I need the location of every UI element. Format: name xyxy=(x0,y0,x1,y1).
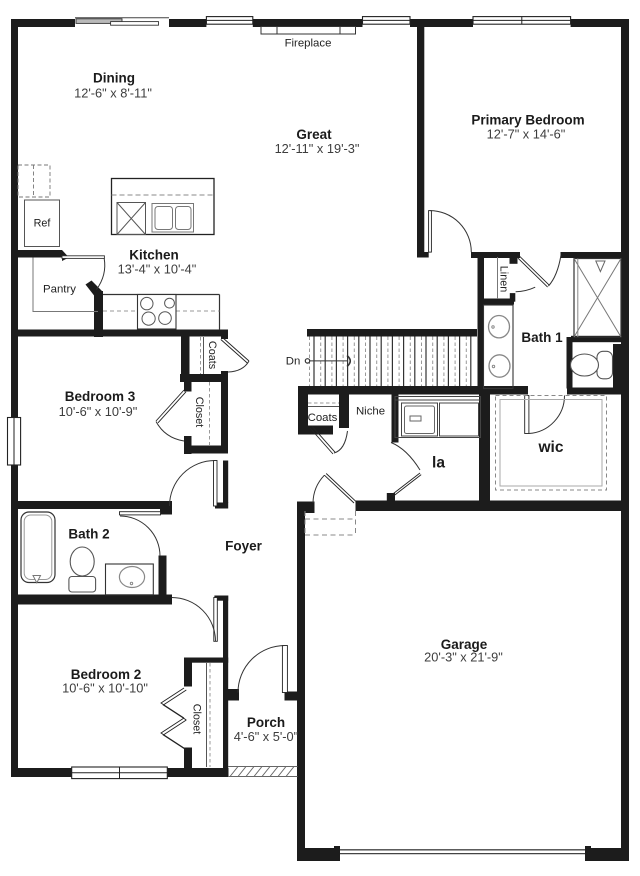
svg-text:Pantry: Pantry xyxy=(43,284,76,296)
svg-text:Dn: Dn xyxy=(286,356,301,368)
svg-text:Ref: Ref xyxy=(34,218,52,230)
svg-text:Dining: Dining xyxy=(93,71,135,86)
svg-text:12'-7" x 14'-6": 12'-7" x 14'-6" xyxy=(487,127,566,142)
svg-text:Coats: Coats xyxy=(308,412,338,424)
svg-text:Niche: Niche xyxy=(356,406,385,418)
svg-text:Coats: Coats xyxy=(206,341,218,370)
svg-text:Fireplace: Fireplace xyxy=(285,38,332,50)
svg-text:Great: Great xyxy=(296,127,332,142)
svg-text:Linen: Linen xyxy=(498,266,510,292)
svg-text:Bath 1: Bath 1 xyxy=(521,330,563,345)
svg-text:Primary Bedroom: Primary Bedroom xyxy=(471,113,584,128)
svg-text:12'-6" x 8'-11": 12'-6" x 8'-11" xyxy=(74,86,152,101)
svg-text:4'-6" x 5'-0": 4'-6" x 5'-0" xyxy=(234,729,298,744)
svg-text:la: la xyxy=(432,455,445,472)
svg-text:Porch: Porch xyxy=(247,715,285,730)
svg-text:Bedroom 3: Bedroom 3 xyxy=(65,389,136,404)
svg-text:Bath 2: Bath 2 xyxy=(68,527,109,542)
svg-text:Foyer: Foyer xyxy=(225,539,263,554)
svg-text:Closet: Closet xyxy=(191,704,203,735)
svg-text:Kitchen: Kitchen xyxy=(129,248,179,263)
svg-text:12'-11" x 19'-3": 12'-11" x 19'-3" xyxy=(275,141,360,156)
svg-text:Closet: Closet xyxy=(193,397,205,428)
svg-text:20'-3" x 21'-9": 20'-3" x 21'-9" xyxy=(424,650,503,665)
svg-text:wic: wic xyxy=(538,439,564,456)
svg-text:10'-6" x 10'-10": 10'-6" x 10'-10" xyxy=(62,681,148,696)
svg-text:13'-4" x 10'-4": 13'-4" x 10'-4" xyxy=(118,262,197,277)
svg-text:10'-6" x 10'-9": 10'-6" x 10'-9" xyxy=(59,404,138,419)
